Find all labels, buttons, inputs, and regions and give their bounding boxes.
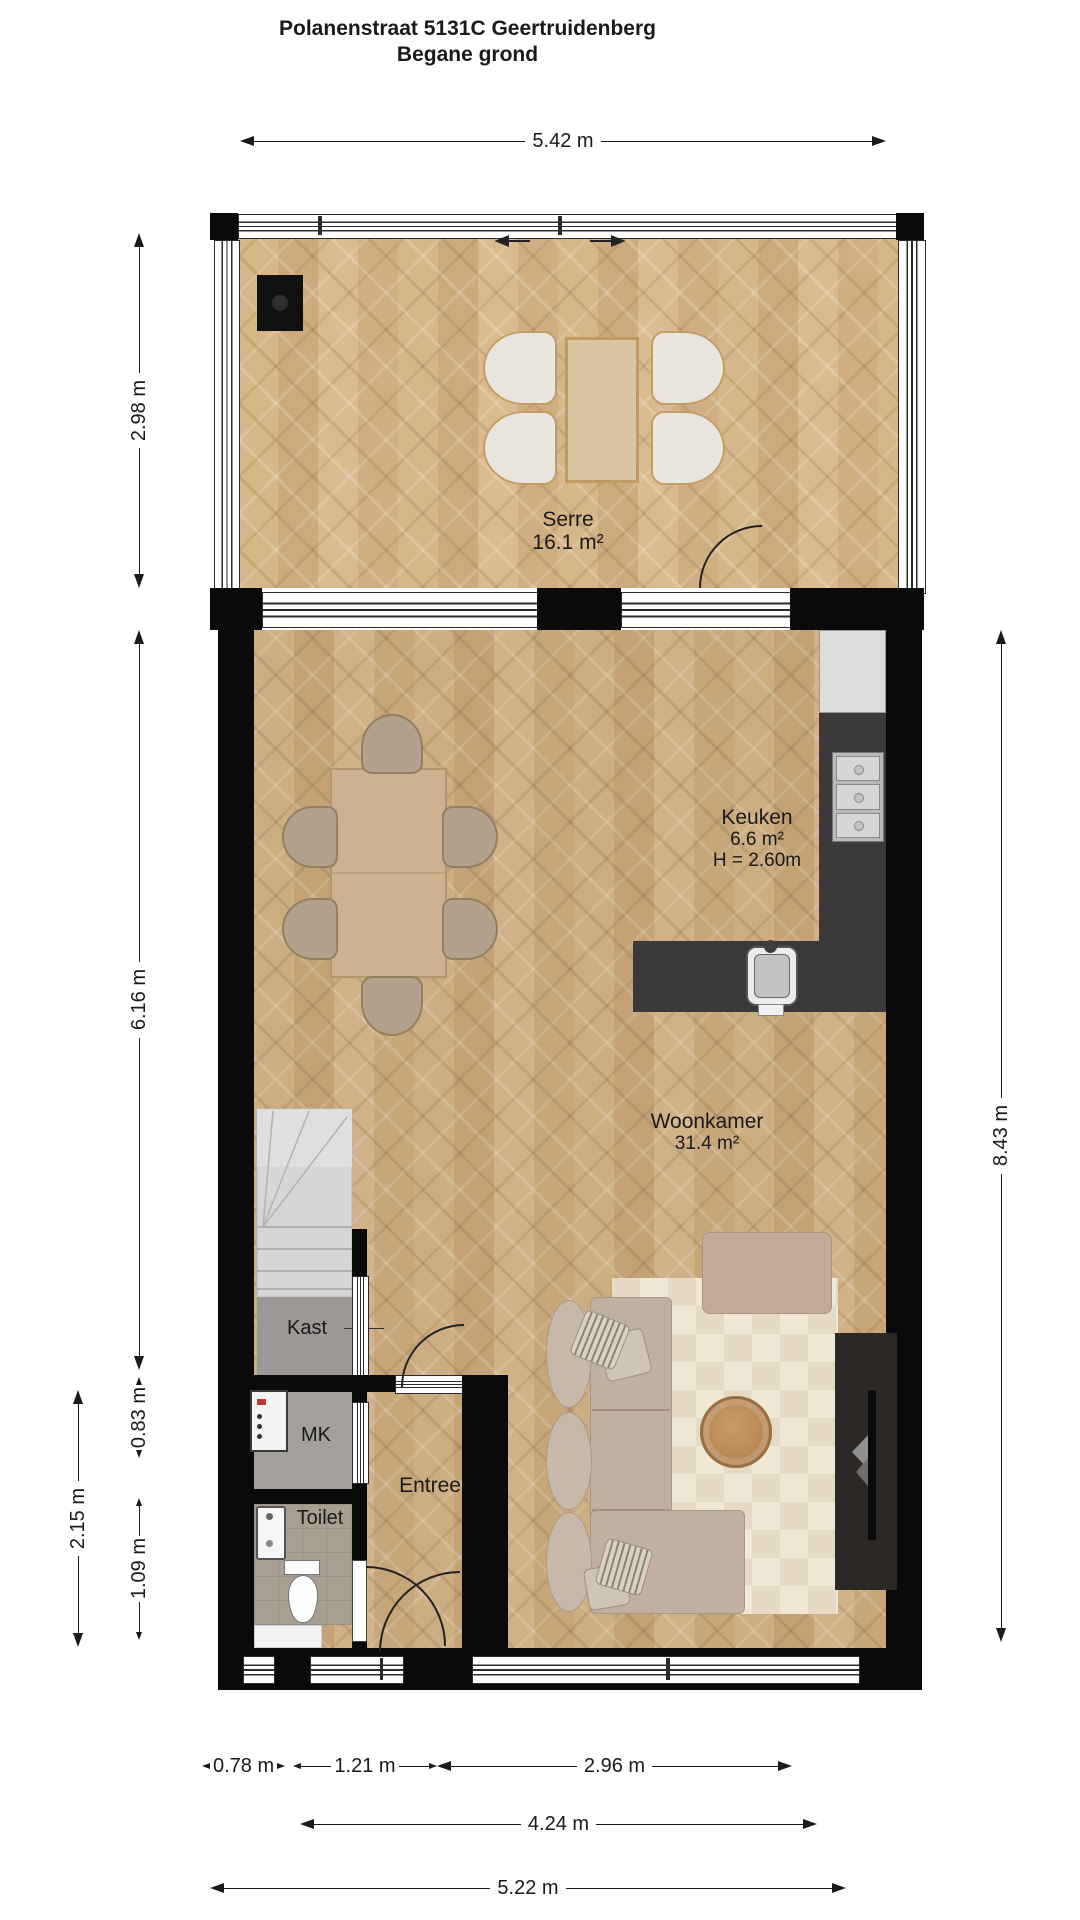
woonkamer-door-arc xyxy=(402,1325,464,1387)
dim-toilet-height: 1.09 m xyxy=(128,1498,150,1640)
dim-outer-height-label: 2.15 m xyxy=(67,1481,90,1556)
dim-bottom-mid-label: 4.24 m xyxy=(521,1814,596,1834)
dim-bottom-mid: 4.24 m xyxy=(300,1813,817,1835)
dim-bottom-toilet-label: 0.78 m xyxy=(210,1754,277,1778)
dim-bottom-woonkamer-label: 2.96 m xyxy=(577,1756,652,1776)
front-door-arc xyxy=(380,1572,460,1652)
dim-top: 5.42 m xyxy=(240,130,886,152)
dim-mk-height-label: 0.83 m xyxy=(125,1385,154,1450)
dim-serre-height-label: 2.98 m xyxy=(128,373,151,448)
serre-door-arc xyxy=(700,526,762,588)
dim-right-height-label: 8.43 m xyxy=(990,1098,1013,1173)
dim-bottom-woonkamer: 2.96 m xyxy=(437,1755,792,1777)
floorplan-canvas: Polanenstraat 5131C Geertruidenberg Bega… xyxy=(0,0,1080,1920)
dim-main-height-label: 6.16 m xyxy=(128,962,151,1037)
dim-bottom-toilet: 0.78 m xyxy=(202,1755,294,1777)
dim-main-height: 6.16 m xyxy=(128,630,150,1370)
dim-mk-height: 0.83 m xyxy=(128,1377,150,1487)
toilet-door-arc xyxy=(366,1567,445,1646)
sliding-door-arrows xyxy=(497,237,623,246)
dim-toilet-height-label: 1.09 m xyxy=(125,1536,154,1601)
dim-top-label: 5.42 m xyxy=(525,131,600,151)
dim-bottom-entree: 1.21 m xyxy=(293,1755,437,1777)
dim-serre-height: 2.98 m xyxy=(128,233,150,588)
dim-right-height: 8.43 m xyxy=(990,630,1012,1642)
dim-outer-height: 2.15 m xyxy=(67,1390,89,1647)
dim-bottom-full: 5.22 m xyxy=(210,1877,846,1899)
dim-bottom-full-label: 5.22 m xyxy=(490,1878,565,1898)
dim-bottom-entree-label: 1.21 m xyxy=(331,1754,398,1778)
door-swing-arcs xyxy=(0,0,1080,1920)
